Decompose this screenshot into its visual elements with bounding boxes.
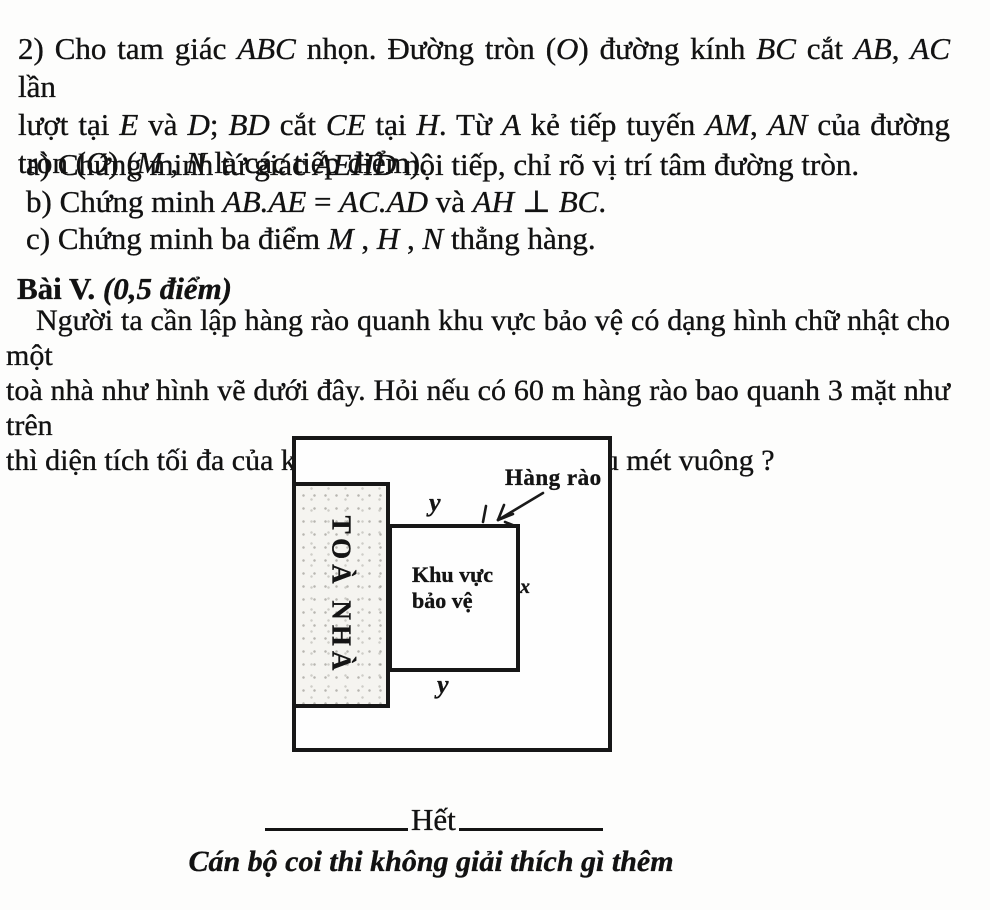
section-5-heading: Bài V. (0,5 điểm) [17,271,232,307]
statement-line-1: 2) Cho tam giác ABC nhọn. Đường tròn (O)… [18,30,950,106]
statement-line-2: lượt tại E và D; BD cắt CE tại H. Từ A k… [18,106,950,144]
problem-2-subitems: a) Chứng minh tứ giác AEHD nội tiếp, chỉ… [26,146,966,257]
subitem-c: c) Chứng minh ba điểm M , H , N thẳng hà… [26,220,966,257]
subitem-b: b) Chứng minh AB.AE = AC.AD và AH ⊥ BC. [26,183,966,220]
end-divider: Hết [265,803,603,837]
section-5-points: (0,5 điểm) [95,271,232,306]
subitem-a: a) Chứng minh tứ giác AEHD nội tiếp, chỉ… [26,146,966,183]
footer-note: Cán bộ coi thi không giải thích gì thêm [181,845,681,879]
end-rule-right [459,828,603,831]
end-rule-left [265,828,408,831]
fence-diagram: TOÀ NHÀ Khu vực bảo vệ y y x Hàng rào [292,430,626,764]
fence-arrow-icon [292,430,626,764]
section-5-number: Bài V. [17,271,95,306]
exam-page: 2) Cho tam giác ABC nhọn. Đường tròn (O)… [0,0,990,910]
statement5-line-1: Người ta cần lập hàng rào quanh khu vực … [6,303,950,373]
end-label: Hết [408,803,459,837]
